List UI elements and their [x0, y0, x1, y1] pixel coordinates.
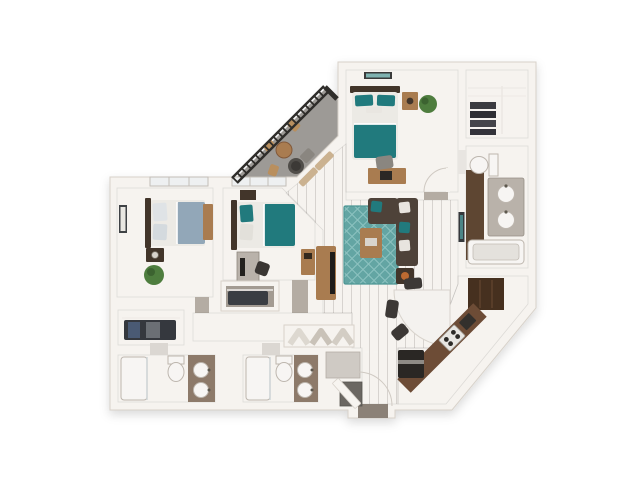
- entry-doorway-gap: [358, 404, 388, 418]
- pillow-teal: [355, 95, 374, 107]
- faucet: [504, 184, 507, 187]
- faucet: [208, 369, 211, 372]
- window: [150, 177, 208, 186]
- tub-shower: [246, 357, 270, 400]
- blue-gray-duvet: [177, 202, 205, 244]
- hanging-clothes: [228, 291, 268, 305]
- plant-leaves: [421, 97, 428, 104]
- toilet-tank: [489, 154, 498, 176]
- floor-plan-svg: [0, 0, 640, 480]
- headboard: [231, 200, 237, 250]
- coat-closet: [326, 352, 360, 378]
- fire-table-top: [291, 161, 301, 171]
- potted-plant: [144, 265, 164, 285]
- sink: [194, 383, 209, 398]
- bedroom-2-door-gap: [292, 280, 308, 313]
- pillow-teal: [377, 95, 395, 107]
- sink: [498, 186, 515, 203]
- faucet: [311, 369, 314, 372]
- folded-clothes: [470, 120, 496, 127]
- folded-clothes: [470, 102, 496, 109]
- pillow: [152, 203, 167, 222]
- pillow: [153, 224, 168, 241]
- reach-in-closet: [221, 281, 279, 311]
- faucet: [504, 210, 507, 213]
- pillow: [239, 224, 253, 241]
- teal-duvet: [264, 204, 295, 246]
- dresser: [301, 249, 315, 275]
- accent-pillow: [366, 107, 382, 113]
- headboard: [350, 86, 400, 93]
- wall-art: [460, 215, 463, 239]
- bathroom-3-door-gap: [150, 343, 168, 355]
- plant-leaves: [147, 268, 155, 276]
- refrigerator-handle: [398, 360, 424, 364]
- accent-pillow: [370, 201, 382, 213]
- dining-chair: [385, 299, 399, 318]
- folded-clothes: [470, 129, 496, 135]
- lamp: [407, 98, 414, 105]
- sink: [194, 363, 209, 378]
- nightstand: [240, 190, 256, 200]
- hanging-clothes-blue: [128, 322, 140, 338]
- desk-chair: [375, 155, 394, 170]
- coffee-table-tray: [365, 238, 377, 246]
- hanging-clothes-gray: [146, 322, 160, 338]
- toilet-bowl: [470, 157, 488, 174]
- tv: [330, 252, 335, 294]
- accent-pillow: [399, 201, 411, 213]
- sink: [498, 212, 515, 229]
- sink: [298, 383, 313, 398]
- bath-hall-door-gap: [458, 150, 466, 174]
- slim-dresser: [203, 204, 213, 240]
- toilet-bowl: [168, 363, 184, 382]
- faucet: [208, 389, 211, 392]
- headboard: [145, 198, 151, 248]
- dresser-items: [304, 253, 312, 259]
- folded-clothes: [470, 111, 496, 118]
- floor-plan-image: [0, 0, 640, 480]
- lamp: [152, 252, 159, 259]
- dining-chair: [404, 277, 423, 290]
- faucet: [311, 389, 314, 392]
- wall-art-mat: [121, 207, 126, 231]
- monitor: [240, 258, 245, 276]
- bathtub-basin: [473, 244, 519, 260]
- laptop: [380, 171, 392, 180]
- bistro-table: [276, 142, 292, 158]
- potted-plant: [419, 95, 437, 113]
- accent-pillow: [399, 222, 411, 234]
- bedroom-3-door-gap: [195, 297, 209, 313]
- teal-duvet: [354, 124, 396, 158]
- bathroom-2-door-gap: [262, 343, 280, 355]
- accent-pillow: [399, 240, 411, 252]
- toilet-bowl: [276, 363, 292, 382]
- tub-shower: [121, 357, 147, 400]
- master-door-gap: [424, 192, 448, 200]
- sink: [298, 363, 313, 378]
- pillow-teal: [239, 205, 253, 223]
- walk-in-closet: [122, 318, 180, 340]
- wall-art: [366, 74, 390, 78]
